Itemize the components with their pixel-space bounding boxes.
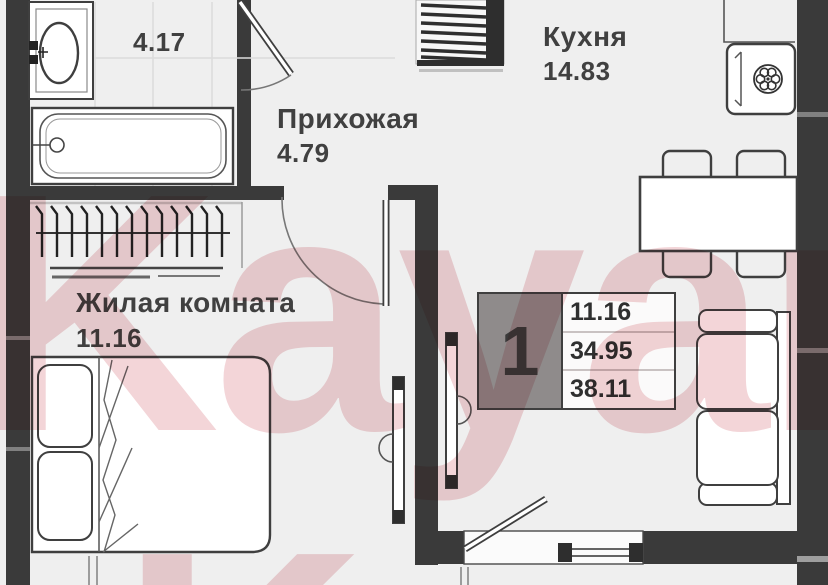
tv-living (379, 377, 404, 523)
hangers-icon (36, 206, 222, 257)
bathroom-area-label: 4.17 (133, 28, 186, 57)
balcony-partition-center (461, 567, 468, 585)
wardrobe (30, 202, 242, 277)
area-without-balcony-value: 34.95 (563, 333, 674, 372)
total-area-value: 38.11 (563, 371, 674, 408)
kitchen-counter (724, 0, 795, 42)
balcony-partition-left (89, 556, 97, 585)
floor-plan: 4.17 Прихожая 4.79 Кухня 14.83 Жилая ком… (0, 0, 828, 585)
vent-shaft (416, 0, 504, 72)
living-area-value: 11.16 (563, 294, 674, 333)
area-table: 11.16 34.95 38.11 (561, 294, 674, 408)
entrance-door (240, 2, 291, 90)
dining-table (640, 177, 797, 251)
sofa (697, 310, 790, 505)
hallway-name-label: Прихожая (277, 104, 419, 135)
interior-door (282, 197, 386, 306)
apartment-info-box: 1 11.16 34.95 38.11 (477, 292, 676, 410)
living-room-name-label: Жилая комната (76, 288, 295, 319)
hallway-area-label: 4.79 (277, 139, 330, 168)
apartment-number: 1 (479, 294, 561, 408)
burner-icon (754, 65, 782, 93)
stove (727, 44, 795, 114)
tv-kitchen (446, 333, 471, 488)
bed (32, 357, 270, 552)
sink (29, 2, 93, 99)
kitchen-area-label: 14.83 (543, 57, 611, 86)
kitchen-name-label: Кухня (543, 22, 627, 53)
living-room-area-label: 11.16 (76, 324, 142, 353)
bathtub (32, 108, 233, 184)
